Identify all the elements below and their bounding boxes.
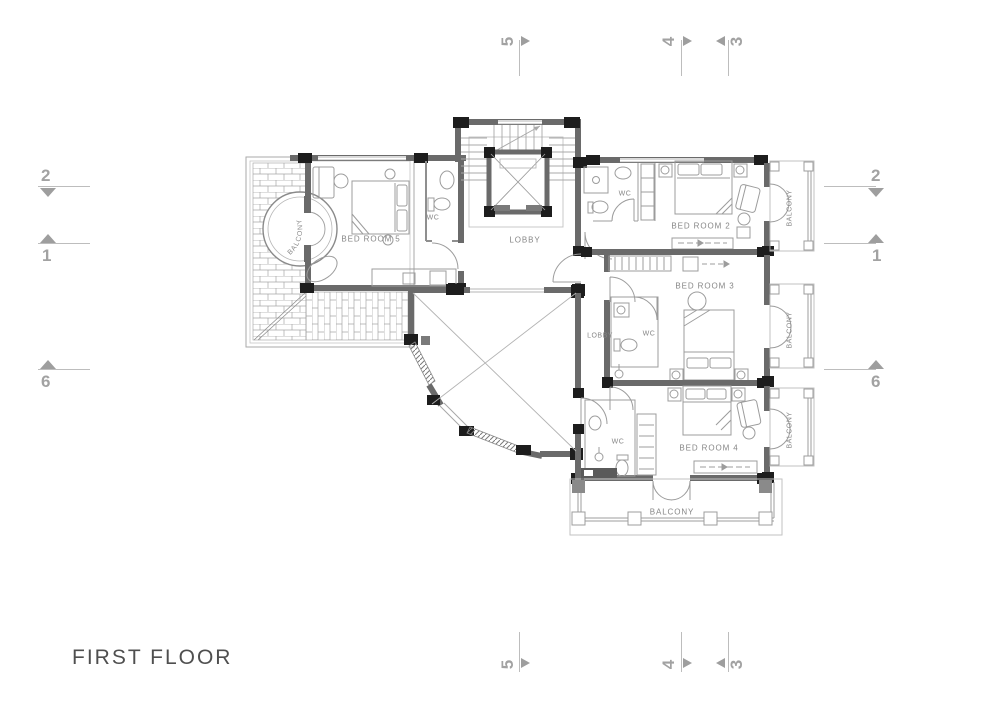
sheet-title: FIRST FLOOR — [72, 646, 232, 670]
grid-number: 5 — [499, 37, 516, 46]
grid-arrow-left-icon — [716, 658, 725, 668]
grid-arrow-down-icon — [40, 188, 56, 197]
grid-number: 1 — [42, 247, 51, 264]
floor-plan-drawing: BALCONY — [0, 0, 1000, 707]
bedroom3-block — [602, 255, 774, 387]
wc-bedroom3-label: WC — [643, 331, 656, 338]
grid-number: 4 — [660, 37, 677, 46]
grid-number: 2 — [871, 167, 880, 184]
wc-bedroom2-label: WC — [619, 191, 632, 198]
bedroom4-label: BED ROOM 4 — [679, 444, 738, 453]
stair-core — [453, 117, 581, 227]
lobby-walls — [553, 157, 587, 296]
balcony-bed4-label: BALCONY — [787, 412, 794, 449]
grid-number: 6 — [871, 373, 880, 390]
bedroom5-label: BED ROOM 5 — [341, 235, 400, 244]
grid-arrow-right-icon — [521, 36, 530, 46]
grid-number: 6 — [41, 373, 50, 390]
grid-arrow-up-icon — [868, 234, 884, 243]
grid-arrow-right-icon — [521, 658, 530, 668]
balcony-bottom-label: BALCONY — [650, 508, 695, 517]
bedroom2-label: BED ROOM 2 — [671, 222, 730, 231]
grid-arrow-left-icon — [716, 36, 725, 46]
lobby-small-label: LOBBY — [587, 333, 613, 340]
bedroom4-block — [571, 386, 774, 500]
grid-number: 1 — [872, 247, 881, 264]
grid-arrow-up-icon — [40, 360, 56, 369]
balcony-bed3-label: BALCONY — [787, 312, 794, 349]
grid-arrow-up-icon — [868, 360, 884, 369]
grid-arrow-up-icon — [40, 234, 56, 243]
balcony-bed2-label: BALCONY — [787, 190, 794, 227]
grid-number: 2 — [41, 167, 50, 184]
grid-number: 5 — [499, 660, 516, 669]
grid-arrow-right-icon — [683, 658, 692, 668]
floor-plan-sheet: BALCONY — [0, 0, 1000, 707]
lobby-main-label: LOBBY — [509, 236, 540, 245]
grid-number: 4 — [660, 660, 677, 669]
void-room — [404, 284, 607, 481]
grid-number: 3 — [728, 37, 745, 46]
bedroom2-block — [584, 155, 774, 259]
grid-number: 3 — [728, 660, 745, 669]
wc-bedroom5-label: WC — [427, 215, 440, 222]
grid-arrow-right-icon — [683, 36, 692, 46]
wc-bedroom4-label: WC — [612, 439, 625, 446]
bedroom3-label: BED ROOM 3 — [675, 282, 734, 291]
grid-arrow-down-icon — [868, 188, 884, 197]
roof-terrace: BALCONY — [246, 157, 414, 347]
